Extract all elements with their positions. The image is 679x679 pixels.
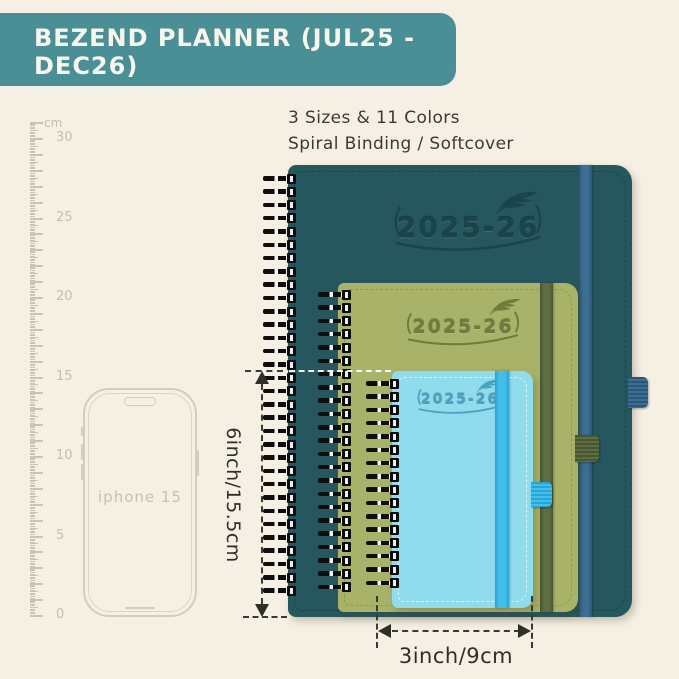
ruler-tick	[30, 543, 38, 544]
ruler-tick	[30, 440, 43, 442]
ruler-tick	[30, 507, 35, 508]
ruler-tick	[30, 213, 35, 214]
ruler-tick	[30, 513, 35, 514]
ruler-tick	[30, 405, 35, 406]
spiral-hole	[390, 551, 399, 561]
spiral-hole	[342, 409, 351, 419]
height-dim-label: 6inch/15.5cm	[222, 425, 244, 565]
spiral-hole	[342, 423, 351, 433]
spiral-coil	[318, 292, 348, 297]
ruler-tick	[30, 160, 35, 161]
spiral-coil	[263, 429, 293, 434]
ruler-tick	[30, 516, 35, 517]
spiral-coil	[318, 505, 348, 510]
ruler-tick	[30, 225, 38, 226]
ruler-tick	[30, 190, 35, 191]
spiral-coil	[366, 434, 396, 439]
ruler-tick	[30, 540, 35, 541]
iphone-volume-down-button	[81, 464, 84, 480]
ruler-tick	[30, 466, 35, 467]
ruler-tick	[30, 359, 35, 360]
spiral-coil	[318, 452, 348, 457]
spiral-hole	[342, 449, 351, 459]
ruler-tick	[30, 292, 35, 293]
spiral-coil	[263, 296, 293, 301]
ruler-tick	[30, 558, 35, 559]
spiral-hole	[342, 316, 351, 326]
ruler-tick	[30, 334, 35, 335]
spiral-hole	[390, 432, 399, 442]
ruler-tick	[30, 413, 35, 414]
spiral-hole	[287, 267, 296, 277]
spiral-hole	[342, 462, 351, 472]
ruler-tick	[30, 555, 35, 556]
ruler-tick	[30, 272, 35, 273]
ruler-tick	[30, 575, 38, 576]
ruler-tick	[30, 550, 35, 551]
ruler-tick	[30, 367, 35, 368]
spiral-coil	[366, 554, 396, 559]
spiral-hole	[390, 498, 399, 508]
spiral-hole	[390, 485, 399, 495]
ruler-tick	[30, 454, 35, 455]
ruler-tick	[30, 305, 38, 306]
spiral-coil	[263, 548, 293, 553]
planner-small-elastic-band	[495, 371, 509, 608]
ruler-tick	[30, 526, 35, 527]
ruler-tick	[30, 127, 35, 128]
spiral-coil	[318, 372, 348, 377]
ruler-tick	[30, 146, 38, 147]
spiral-coil	[263, 442, 293, 447]
spiral-coil	[263, 349, 293, 354]
ruler-label: 20	[56, 289, 73, 304]
ruler-tick	[30, 577, 35, 578]
spiral-coil	[318, 531, 348, 536]
ruler-tick	[30, 183, 35, 184]
spiral-hole	[342, 303, 351, 313]
ruler-tick	[30, 248, 35, 249]
ruler-tick	[30, 260, 35, 261]
ruler-tick	[30, 303, 35, 304]
ruler-tick	[30, 356, 35, 357]
ruler-tick	[30, 135, 35, 136]
spiral-coil	[318, 385, 348, 390]
ruler-tick	[30, 284, 35, 285]
ruler-tick	[30, 477, 35, 478]
ruler-tick	[30, 604, 35, 605]
spiral-hole	[342, 516, 351, 526]
ruler-tick	[30, 431, 35, 432]
ruler-tick	[30, 556, 35, 557]
ruler-tick	[30, 327, 35, 328]
ruler-tick	[30, 547, 35, 548]
spiral-coil	[263, 495, 293, 500]
spiral-hole	[342, 529, 351, 539]
ruler-tick	[30, 384, 38, 385]
spiral-hole	[287, 280, 296, 290]
ruler-tick	[30, 609, 35, 610]
ruler-tick	[30, 275, 35, 276]
feature-text: 3 Sizes & 11 Colors Spiral Binding / Sof…	[288, 105, 514, 157]
iphone-volume-up-button	[81, 444, 84, 460]
ruler-tick	[30, 451, 35, 452]
spiral-coil	[366, 581, 396, 586]
ruler-tick	[30, 593, 35, 594]
planner-small: 2025-26	[392, 371, 533, 608]
ruler-tick	[30, 195, 35, 196]
spiral-hole	[287, 187, 296, 197]
ruler-tick	[30, 197, 35, 198]
ruler-tick	[30, 138, 43, 140]
spiral-hole	[342, 290, 351, 300]
ruler-label: 15	[56, 369, 73, 384]
ruler-tick	[30, 531, 35, 532]
ruler-tick	[30, 181, 35, 182]
ruler-tick	[30, 613, 35, 614]
ruler-tick	[30, 245, 35, 246]
width-dim-left-tick	[376, 596, 378, 648]
ruler-tick	[30, 591, 38, 592]
ruler-label: 25	[56, 210, 73, 225]
spiral-coil	[263, 415, 293, 420]
spiral-hole	[342, 489, 351, 499]
ruler-tick	[30, 582, 35, 583]
iphone-camera-island	[124, 397, 156, 406]
spiral-coil	[263, 588, 293, 593]
spiral-hole	[390, 418, 399, 428]
ruler-tick	[30, 605, 35, 606]
ruler-tick	[30, 335, 35, 336]
ruler-tick	[30, 265, 43, 267]
ruler-tick	[30, 518, 35, 519]
ruler-tick	[30, 386, 35, 387]
spiral-hole	[390, 538, 399, 548]
spiral-hole	[287, 400, 296, 410]
ruler-tick	[30, 316, 35, 317]
ruler-tick	[30, 388, 35, 389]
ruler-tick	[30, 599, 43, 601]
feature-line-binding: Spiral Binding / Softcover	[288, 131, 514, 157]
ruler-tick	[30, 427, 35, 428]
ruler-tick	[30, 132, 35, 133]
ruler-tick	[30, 170, 43, 172]
ruler-tick	[30, 343, 35, 344]
spiral-hole	[287, 213, 296, 223]
ruler-tick	[30, 462, 35, 463]
ruler-tick	[30, 136, 35, 137]
spiral-coil	[366, 448, 396, 453]
ruler-tick	[30, 446, 35, 447]
iphone-label: iphone 15	[85, 488, 195, 506]
spiral-coil	[318, 438, 348, 443]
ruler-tick	[30, 402, 35, 403]
planner-large-elastic-band	[579, 165, 592, 617]
spiral-hole	[342, 356, 351, 366]
ruler-tick	[30, 372, 35, 373]
spiral-hole	[390, 525, 399, 535]
ruler-tick	[30, 208, 35, 209]
feature-line-sizes: 3 Sizes & 11 Colors	[288, 105, 514, 131]
ruler-tick	[30, 291, 35, 292]
ruler-label: 10	[56, 448, 73, 463]
spiral-hole	[390, 445, 399, 455]
ruler-tick	[30, 370, 35, 371]
height-dim-extension-line	[289, 370, 391, 372]
ruler-tick	[30, 391, 35, 392]
ruler-tick	[30, 435, 35, 436]
spiral-hole	[287, 426, 296, 436]
spiral-coil	[366, 421, 396, 426]
ruler-tick	[30, 615, 43, 617]
spiral-hole	[287, 440, 296, 450]
spiral-coil	[263, 176, 293, 181]
ruler-tick	[30, 198, 35, 199]
spiral-coil	[263, 229, 293, 234]
ruler-tick	[30, 364, 35, 365]
ruler-tick	[30, 286, 35, 287]
ruler-tick	[30, 572, 35, 573]
ruler-tick	[30, 532, 35, 533]
ruler-tick	[30, 408, 43, 410]
spiral-hole	[287, 546, 296, 556]
ruler-tick	[30, 273, 38, 274]
ruler-tick	[30, 311, 35, 312]
ruler-tick	[30, 459, 35, 460]
ruler-tick	[30, 421, 35, 422]
product-infographic: BEZEND PLANNER (JUL25 - DEC26) Perfect f…	[0, 0, 679, 679]
width-dim-arrow-left	[378, 624, 391, 638]
ruler-tick	[30, 392, 43, 394]
spiral-coil	[366, 527, 396, 532]
ruler-label: 0	[56, 607, 64, 622]
ruler-tick	[30, 281, 43, 283]
ruler-tick	[30, 437, 35, 438]
ruler-tick	[30, 423, 35, 424]
ruler-tick	[30, 564, 35, 565]
ruler-tick	[30, 450, 35, 451]
ruler-tick	[30, 389, 35, 390]
spiral-hole	[287, 586, 296, 596]
ruler-tick	[30, 295, 35, 296]
ruler-tick	[30, 143, 35, 144]
spiral-coil	[263, 282, 293, 287]
ruler-tick	[30, 586, 35, 587]
spiral-coil	[366, 394, 396, 399]
ruler-tick	[30, 567, 43, 569]
ruler-tick	[30, 252, 35, 253]
ruler-tick	[30, 259, 35, 260]
ruler-tick	[30, 523, 35, 524]
spiral-hole	[287, 200, 296, 210]
spiral-coil	[263, 203, 293, 208]
ruler-tick	[30, 396, 35, 397]
spiral-coil	[318, 492, 348, 497]
ruler-tick	[30, 481, 35, 482]
spiral-hole	[287, 174, 296, 184]
spiral-coil	[263, 389, 293, 394]
planner-large-pen-loop	[628, 377, 648, 408]
spiral-coil	[318, 558, 348, 563]
ruler-tick	[30, 163, 35, 164]
ruler-tick	[30, 241, 38, 242]
ruler-tick	[30, 332, 35, 333]
spiral-hole	[287, 253, 296, 263]
ruler-tick	[30, 551, 43, 553]
ruler-tick	[30, 528, 38, 529]
ruler-tick	[30, 289, 38, 290]
ruler-tick	[30, 211, 35, 212]
spiral-coil	[318, 332, 348, 337]
spiral-hole	[342, 569, 351, 579]
ruler-tick	[30, 502, 35, 503]
spiral-hole	[342, 556, 351, 566]
ruler-tick	[30, 588, 35, 589]
ruler-tick	[30, 329, 43, 331]
spiral-coil	[318, 345, 348, 350]
page-subtitle: Perfect for All Scenarios	[34, 84, 456, 100]
ruler-tick	[30, 375, 35, 376]
spiral-coil	[263, 482, 293, 487]
spiral-hole	[390, 405, 399, 415]
ruler-tick	[30, 524, 35, 525]
ruler-tick	[30, 168, 35, 169]
ruler-tick	[30, 515, 35, 516]
spiral-hole	[287, 360, 296, 370]
spiral-coil	[318, 425, 348, 430]
spiral-hole	[287, 240, 296, 250]
spiral-hole	[287, 479, 296, 489]
spiral-coil	[263, 189, 293, 194]
ruler-tick	[30, 499, 35, 500]
spiral-hole	[342, 582, 351, 592]
spiral-hole	[287, 227, 296, 237]
ruler-tick	[30, 504, 43, 506]
ruler-tick	[30, 276, 35, 277]
ruler-tick	[30, 256, 35, 257]
ruler-tick	[30, 520, 43, 522]
spiral-coil	[263, 362, 293, 367]
ruler-tick	[30, 416, 38, 417]
ruler-tick	[30, 313, 43, 315]
ruler-tick	[30, 461, 35, 462]
spiral-coil	[366, 408, 396, 413]
spiral-hole	[390, 565, 399, 575]
ruler-tick	[30, 227, 35, 228]
ruler-tick	[30, 377, 43, 379]
ruler-tick	[30, 159, 35, 160]
ruler-tick	[30, 318, 35, 319]
ruler-tick	[30, 237, 35, 238]
spiral-hole	[342, 476, 351, 486]
ruler-tick	[30, 512, 38, 513]
ruler-tick	[30, 338, 35, 339]
ruler-tick	[30, 294, 35, 295]
ruler-tick	[30, 268, 35, 269]
ruler-tick	[30, 467, 35, 468]
spiral-coil	[263, 469, 293, 474]
ruler-tick	[30, 475, 35, 476]
spiral-hole	[390, 472, 399, 482]
ruler-tick	[30, 486, 35, 487]
width-dim-line	[392, 630, 520, 632]
header-banner: BEZEND PLANNER (JUL25 - DEC26) Perfect f…	[0, 13, 456, 86]
spiral-hole	[390, 392, 399, 402]
ruler-tick	[30, 222, 35, 223]
spiral-coil	[366, 501, 396, 506]
spiral-hole	[342, 396, 351, 406]
ruler-tick	[30, 232, 35, 233]
ruler-tick	[30, 598, 35, 599]
width-dim-label: 3inch/9cm	[376, 644, 536, 668]
spiral-coil	[263, 216, 293, 221]
ruler-tick	[30, 133, 35, 134]
ruler-tick	[30, 529, 35, 530]
ruler-tick	[30, 321, 38, 322]
ruler-tick	[30, 542, 35, 543]
spiral-coil	[263, 243, 293, 248]
spiral-hole	[342, 383, 351, 393]
planner-small-emboss: 2025-26	[414, 379, 506, 408]
ruler-tick	[30, 300, 35, 301]
ruler-tick	[30, 157, 35, 158]
ruler-tick	[30, 324, 35, 325]
ruler-tick	[30, 445, 35, 446]
ruler-tick	[30, 351, 35, 352]
ruler-tick	[30, 280, 35, 281]
spiral-hole	[287, 373, 296, 383]
spiral-coil	[366, 514, 396, 519]
spiral-hole	[342, 329, 351, 339]
spiral-hole	[390, 578, 399, 588]
planner-small-pen-loop	[531, 482, 552, 507]
ruler-tick	[30, 548, 35, 549]
planner-medium-emboss: 2025-26	[402, 299, 524, 338]
ruler-tick	[30, 357, 35, 358]
spiral-hole	[342, 502, 351, 512]
ruler-tick	[30, 249, 43, 251]
ruler-tick	[30, 399, 35, 400]
ruler-tick	[30, 566, 35, 567]
ruler-tick	[30, 594, 35, 595]
ruler-tick	[30, 240, 35, 241]
ruler-tick	[30, 214, 35, 215]
spiral-hole	[390, 512, 399, 522]
ruler-tick	[30, 480, 38, 481]
spiral-coil	[318, 319, 348, 324]
planner-medium-pen-loop	[575, 435, 599, 462]
ruler-tick	[30, 216, 35, 217]
ruler-tick	[30, 596, 35, 597]
ruler-tick	[30, 178, 38, 179]
ruler-tick	[30, 491, 35, 492]
ruler-tick	[30, 534, 35, 535]
ruler-tick	[30, 354, 35, 355]
ruler-tick	[30, 310, 35, 311]
ruler-tick	[30, 224, 35, 225]
ruler-tick	[30, 381, 35, 382]
spiral-hole	[287, 519, 296, 529]
ruler-tick	[30, 149, 35, 150]
ruler-tick	[30, 210, 38, 211]
ruler-tick	[30, 326, 35, 327]
ruler-tick	[30, 494, 35, 495]
iphone-home-indicator	[125, 607, 155, 609]
ruler-tick	[30, 229, 35, 230]
ruler-tick	[30, 206, 35, 207]
ruler-tick	[30, 262, 35, 263]
spiral-coil	[318, 585, 348, 590]
